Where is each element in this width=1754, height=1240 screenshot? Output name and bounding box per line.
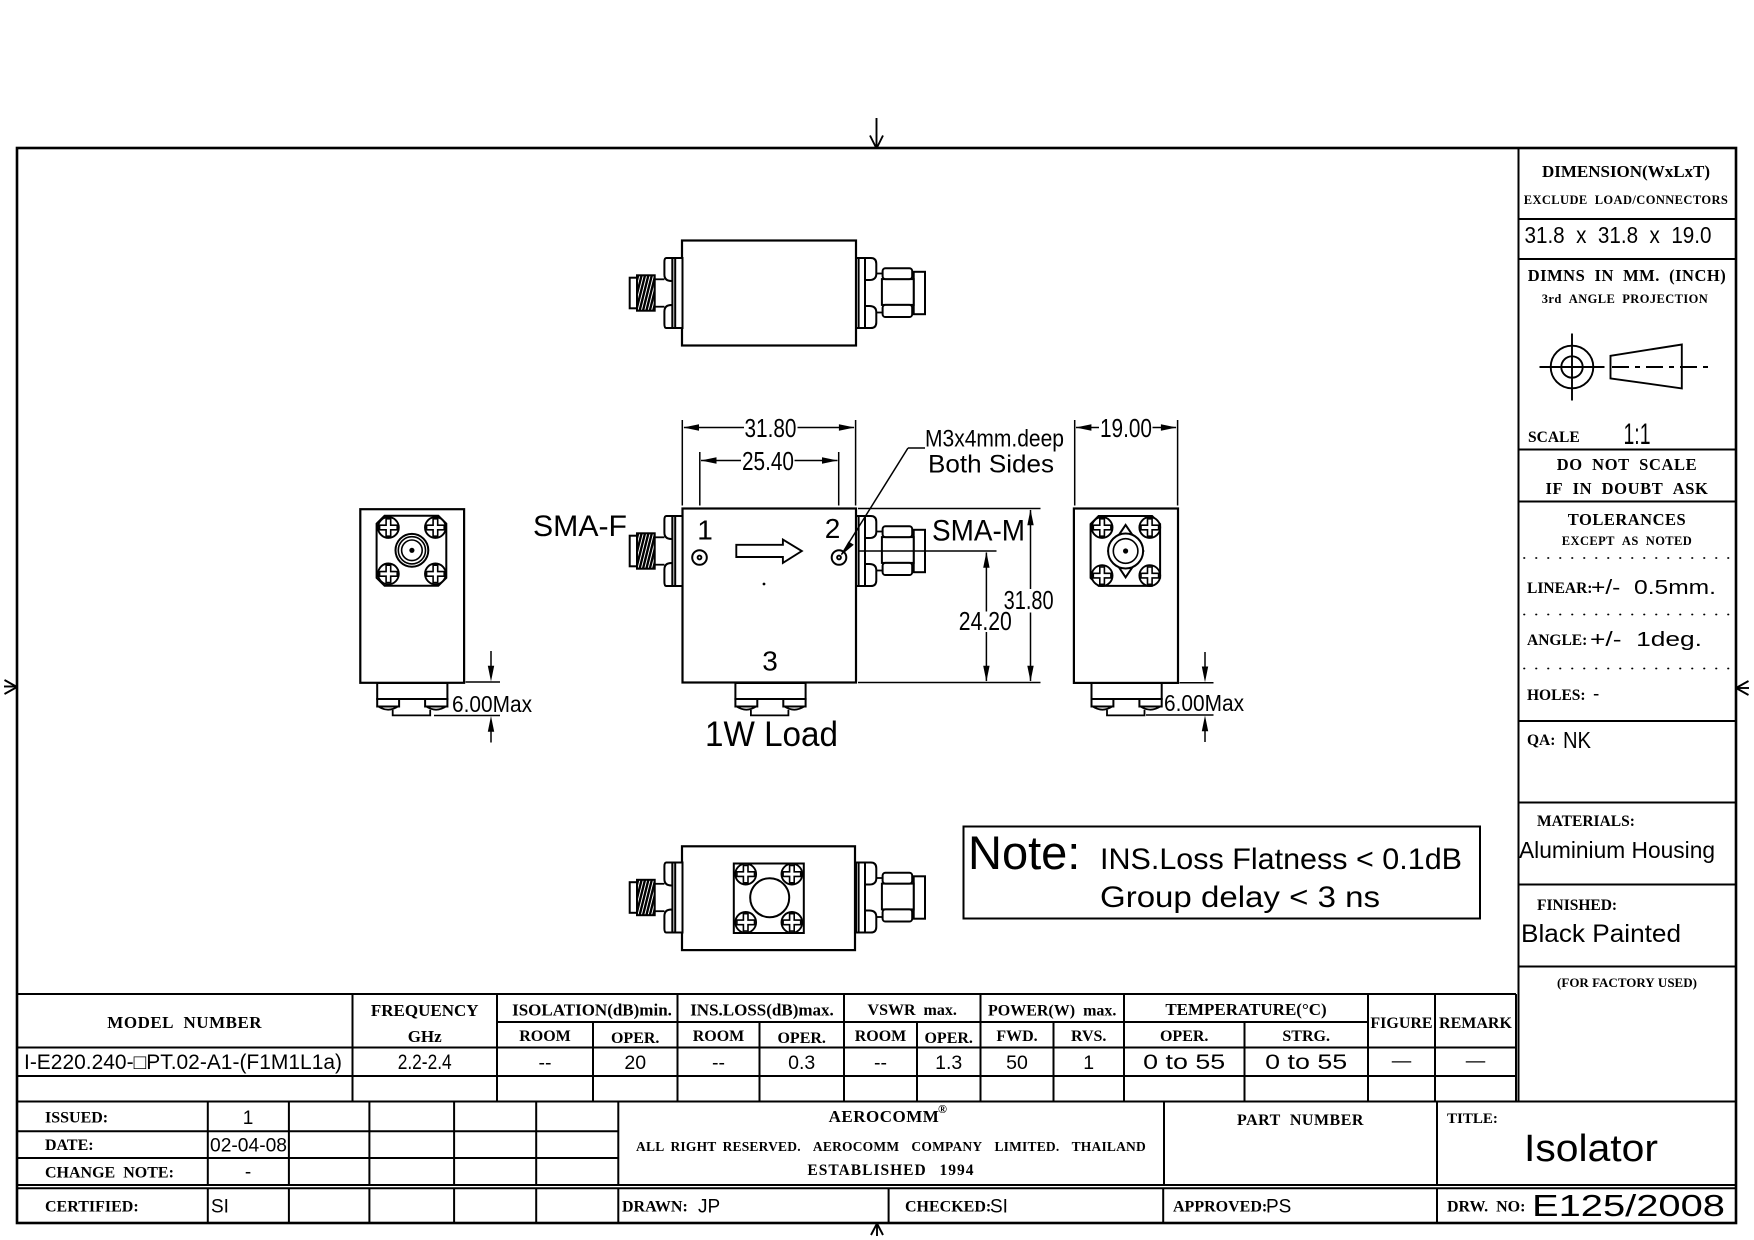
svg-text:MATERIALS:: MATERIALS: bbox=[1537, 813, 1635, 830]
svg-text:TEMPERATURE(°C): TEMPERATURE(°C) bbox=[1165, 1000, 1326, 1019]
svg-text:ROOM: ROOM bbox=[693, 1028, 745, 1045]
svg-text:ROOM: ROOM bbox=[519, 1028, 571, 1045]
svg-text:24.20: 24.20 bbox=[959, 606, 1012, 636]
svg-text:EXCLUDE LOAD/CONNECTORS: EXCLUDE LOAD/CONNECTORS bbox=[1524, 193, 1729, 207]
svg-text:M3x4mm.deep: M3x4mm.deep bbox=[925, 426, 1064, 453]
svg-text:JP: JP bbox=[698, 1197, 720, 1218]
svg-text:VSWR max.: VSWR max. bbox=[868, 1002, 957, 1019]
svg-text:1W Load: 1W Load bbox=[705, 715, 838, 754]
svg-text:INS.LOSS(dB)max.: INS.LOSS(dB)max. bbox=[690, 1001, 834, 1020]
svg-text:CHANGE NOTE:: CHANGE NOTE: bbox=[45, 1165, 174, 1182]
svg-text:IF IN DOUBT ASK: IF IN DOUBT ASK bbox=[1546, 479, 1709, 498]
svg-text:OPER.: OPER. bbox=[611, 1030, 659, 1047]
svg-text:SMA-F: SMA-F bbox=[533, 510, 627, 543]
svg-text:Note:: Note: bbox=[968, 826, 1080, 879]
svg-text:PS: PS bbox=[1266, 1197, 1291, 1218]
svg-text:E125/2008: E125/2008 bbox=[1532, 1188, 1725, 1223]
svg-text:APPROVED:: APPROVED: bbox=[1173, 1199, 1267, 1216]
svg-text:50: 50 bbox=[1006, 1052, 1028, 1074]
svg-text:SCALE: SCALE bbox=[1528, 429, 1580, 446]
svg-text:ISSUED:: ISSUED: bbox=[45, 1110, 108, 1127]
svg-text:0 to 55: 0 to 55 bbox=[1265, 1051, 1347, 1074]
svg-text:DIMENSION(WxLxT): DIMENSION(WxLxT) bbox=[1542, 162, 1710, 181]
svg-text:PART NUMBER: PART NUMBER bbox=[1237, 1112, 1364, 1129]
svg-text:Group delay < 3 ns: Group delay < 3 ns bbox=[1100, 881, 1380, 914]
svg-text:SMA-M: SMA-M bbox=[932, 515, 1025, 548]
svg-text:--: -- bbox=[712, 1052, 725, 1074]
svg-text:Isolator: Isolator bbox=[1524, 1128, 1658, 1170]
svg-text:1:1: 1:1 bbox=[1624, 418, 1651, 451]
svg-text:DIMNS IN MM. (INCH): DIMNS IN MM. (INCH) bbox=[1528, 266, 1726, 285]
svg-text:MODEL NUMBER: MODEL NUMBER bbox=[107, 1013, 262, 1032]
svg-text:1: 1 bbox=[1083, 1052, 1094, 1074]
svg-text:CERTIFIED:: CERTIFIED: bbox=[45, 1199, 139, 1216]
svg-text:31.8 x 31.8 x 19.0: 31.8 x 31.8 x 19.0 bbox=[1525, 222, 1712, 248]
svg-text:I-E220.240-□PT.02-A1-(F1M1L1a): I-E220.240-□PT.02-A1-(F1M1L1a) bbox=[24, 1051, 342, 1074]
svg-text:FREQUENCY: FREQUENCY bbox=[371, 1001, 479, 1020]
svg-text:FINISHED:: FINISHED: bbox=[1537, 897, 1617, 914]
svg-text:+/- 1deg.: +/- 1deg. bbox=[1590, 629, 1702, 651]
svg-text:NK: NK bbox=[1563, 727, 1592, 753]
svg-text:Aluminium Housing: Aluminium Housing bbox=[1519, 837, 1715, 863]
svg-text:--: -- bbox=[874, 1052, 887, 1074]
svg-text:02-04-08: 02-04-08 bbox=[210, 1136, 287, 1157]
svg-text:ISOLATION(dB)min.: ISOLATION(dB)min. bbox=[512, 1001, 672, 1020]
svg-text:0 to 55: 0 to 55 bbox=[1143, 1051, 1225, 1074]
svg-text:(FOR FACTORY USED): (FOR FACTORY USED) bbox=[1557, 975, 1697, 990]
svg-text:Black Painted: Black Painted bbox=[1521, 920, 1681, 948]
svg-text:AEROCOMM: AEROCOMM bbox=[829, 1107, 940, 1126]
svg-text:ESTABLISHED 1994: ESTABLISHED 1994 bbox=[807, 1162, 974, 1179]
svg-text:INS.Loss Flatness < 0.1dB: INS.Loss Flatness < 0.1dB bbox=[1100, 843, 1462, 876]
svg-text:EXCEPT AS NOTED: EXCEPT AS NOTED bbox=[1562, 534, 1692, 548]
svg-text:-: - bbox=[245, 1162, 251, 1183]
svg-text:ALL RIGHT RESERVED. AEROCOMM: ALL RIGHT RESERVED. AEROCOMM COMPANY LIM… bbox=[636, 1139, 1146, 1154]
svg-text:ANGLE:: ANGLE: bbox=[1527, 632, 1587, 649]
svg-text:1: 1 bbox=[243, 1108, 254, 1129]
svg-text:GHz: GHz bbox=[408, 1027, 442, 1046]
svg-text:ROOM: ROOM bbox=[855, 1028, 907, 1045]
svg-text:SI: SI bbox=[990, 1197, 1008, 1218]
svg-text:SI: SI bbox=[211, 1197, 229, 1218]
svg-text:31.80: 31.80 bbox=[745, 413, 797, 443]
svg-text:RVS.: RVS. bbox=[1071, 1028, 1106, 1045]
svg-text:6.00Max: 6.00Max bbox=[1164, 690, 1244, 716]
svg-text:20: 20 bbox=[624, 1052, 646, 1074]
svg-text:DRAWN:: DRAWN: bbox=[622, 1199, 688, 1216]
svg-text:HOLES:: HOLES: bbox=[1527, 687, 1586, 704]
svg-text:POWER(W) max.: POWER(W) max. bbox=[988, 1003, 1116, 1020]
svg-text:6.00Max: 6.00Max bbox=[452, 691, 532, 717]
svg-text:3rd ANGLE PROJECTION: 3rd ANGLE PROJECTION bbox=[1542, 292, 1708, 306]
svg-text:19.00: 19.00 bbox=[1100, 413, 1152, 443]
svg-text:QA:: QA: bbox=[1527, 732, 1555, 749]
svg-text:1: 1 bbox=[697, 515, 713, 546]
svg-text:Both Sides: Both Sides bbox=[928, 451, 1054, 479]
svg-text:0.3: 0.3 bbox=[788, 1052, 815, 1074]
svg-text:—: — bbox=[1392, 1050, 1412, 1072]
svg-text:LINEAR:: LINEAR: bbox=[1527, 580, 1592, 597]
svg-text:FWD.: FWD. bbox=[996, 1028, 1037, 1045]
svg-text:TITLE:: TITLE: bbox=[1447, 1111, 1498, 1127]
svg-text:OPER.: OPER. bbox=[1160, 1028, 1208, 1045]
svg-text:25.40: 25.40 bbox=[742, 446, 794, 476]
svg-text:CHECKED:: CHECKED: bbox=[905, 1199, 991, 1216]
svg-text:-: - bbox=[1593, 684, 1599, 705]
svg-text:DO NOT SCALE: DO NOT SCALE bbox=[1557, 455, 1697, 474]
svg-text:2: 2 bbox=[825, 513, 841, 544]
svg-text:REMARK: REMARK bbox=[1439, 1015, 1512, 1032]
svg-text:—: — bbox=[1466, 1050, 1486, 1072]
svg-text:OPER.: OPER. bbox=[777, 1030, 825, 1047]
svg-text:1.3: 1.3 bbox=[935, 1052, 962, 1074]
svg-text:DATE:: DATE: bbox=[45, 1137, 94, 1154]
svg-text:+/- 0.5mm.: +/- 0.5mm. bbox=[1591, 577, 1716, 599]
svg-text:3: 3 bbox=[762, 646, 778, 677]
svg-text:®: ® bbox=[938, 1102, 947, 1116]
svg-text:TOLERANCES: TOLERANCES bbox=[1568, 510, 1686, 529]
svg-text:--: -- bbox=[539, 1052, 552, 1074]
svg-text:DRW. NO:: DRW. NO: bbox=[1447, 1199, 1525, 1216]
svg-text:OPER.: OPER. bbox=[924, 1030, 972, 1047]
svg-text:STRG.: STRG. bbox=[1282, 1028, 1330, 1045]
svg-text:2.2-2.4: 2.2-2.4 bbox=[398, 1051, 452, 1074]
svg-text:FIGURE: FIGURE bbox=[1370, 1015, 1432, 1032]
